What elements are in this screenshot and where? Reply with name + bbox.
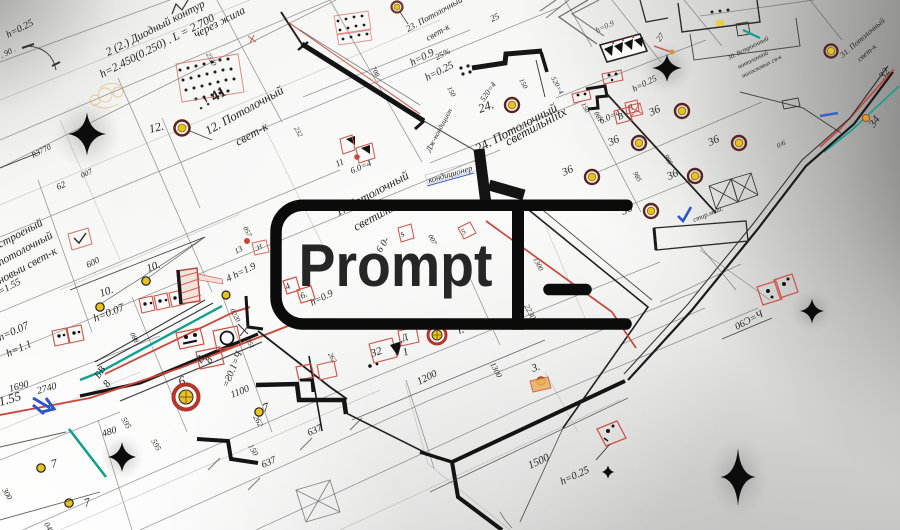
svg-text:Prompt: Prompt bbox=[299, 232, 493, 299]
